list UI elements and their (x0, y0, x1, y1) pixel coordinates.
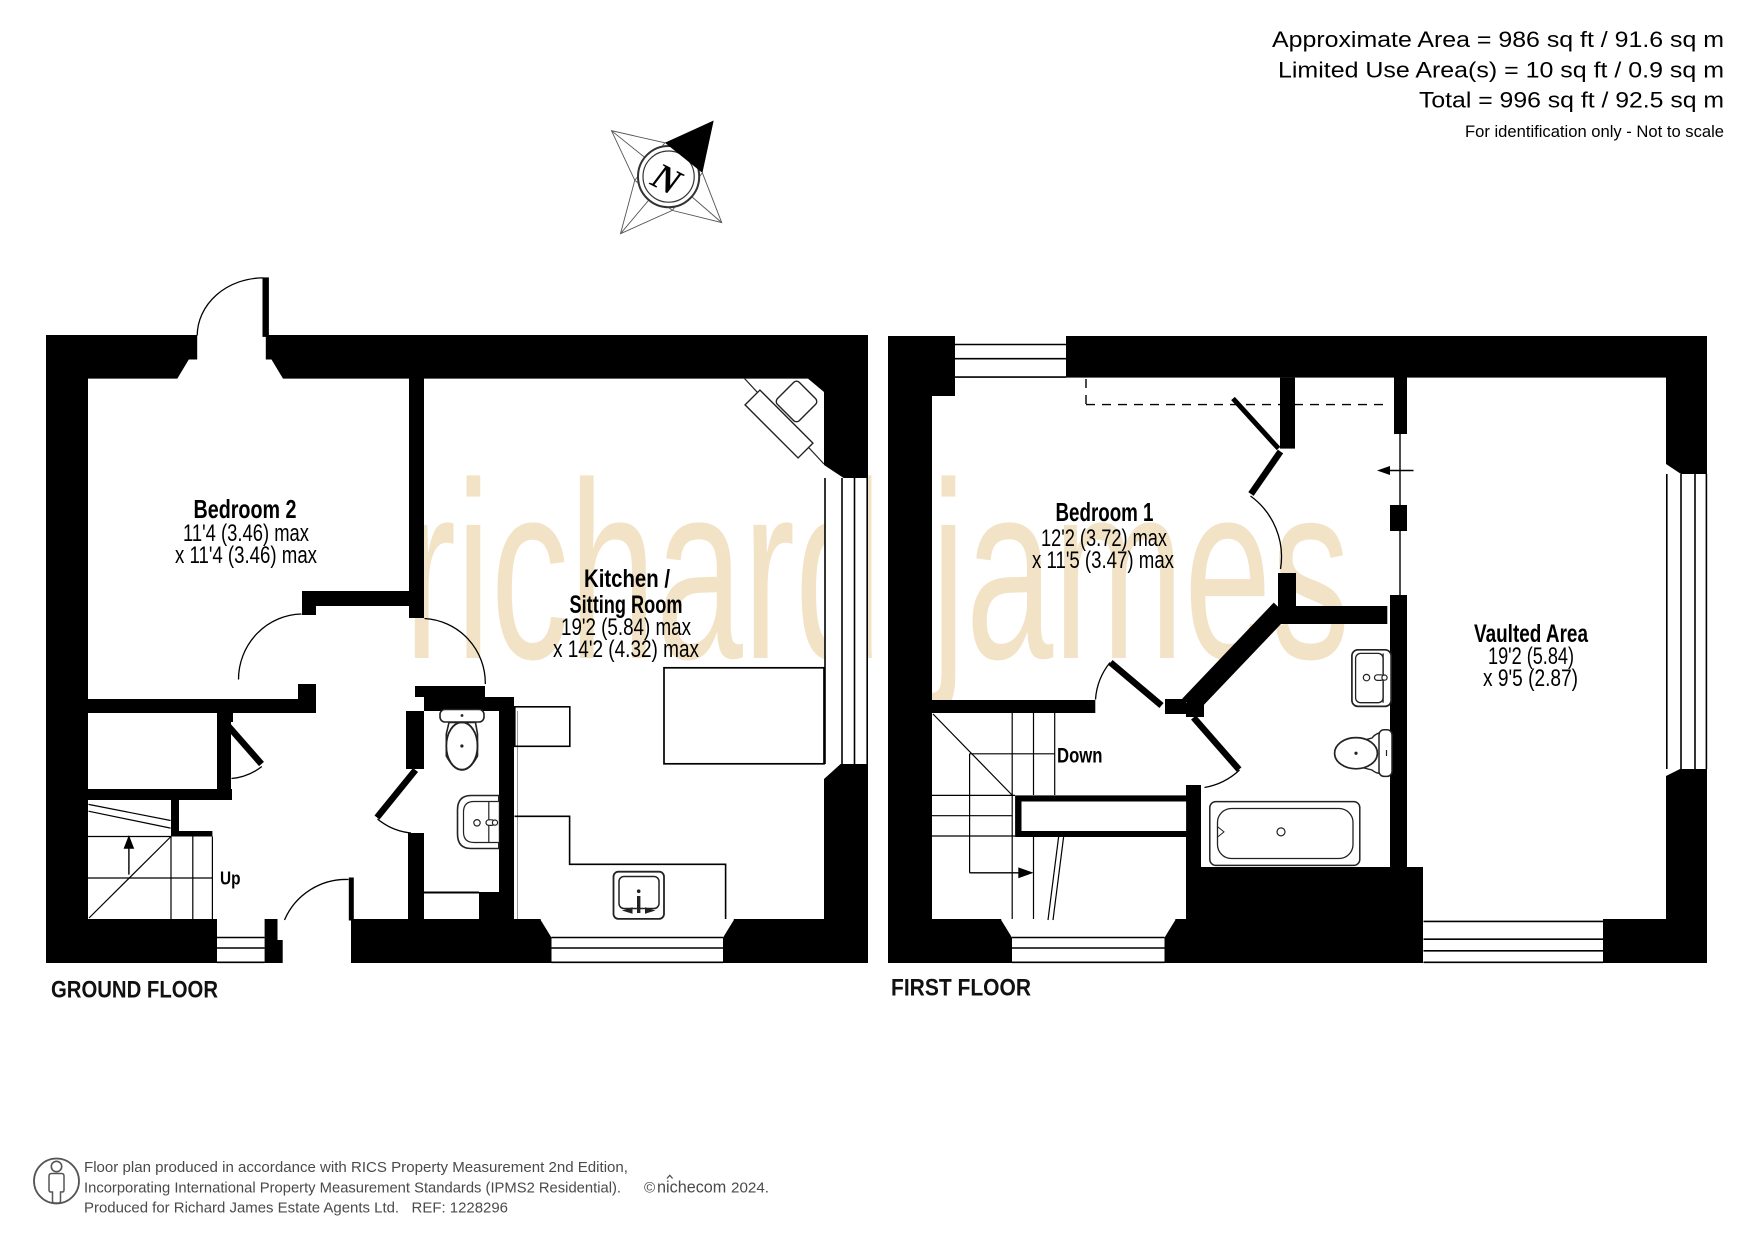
svg-text:x 11'5 (3.47) max: x 11'5 (3.47) max (1032, 547, 1174, 574)
svg-text:FIRST FLOOR: FIRST FLOOR (891, 975, 1031, 1002)
svg-text:2024.: 2024. (731, 1179, 769, 1196)
svg-text:Incorporating International Pr: Incorporating International Property Mea… (84, 1179, 621, 1196)
svg-text:x 11'4 (3.46) max: x 11'4 (3.46) max (175, 542, 317, 569)
svg-text:For identification only - Not: For identification only - Not to scale (1465, 123, 1724, 141)
svg-text:Kitchen /: Kitchen / (584, 565, 670, 593)
svg-text:x 14'2 (4.32) max: x 14'2 (4.32) max (553, 636, 699, 663)
svg-text:Bedroom 1: Bedroom 1 (1056, 497, 1154, 527)
svg-text:Produced for Richard James Est: Produced for Richard James Estate Agents… (84, 1200, 508, 1217)
svg-text:Approximate Area = 986 sq ft /: Approximate Area = 986 sq ft / 91.6 sq m (1272, 27, 1724, 52)
svg-text:Up: Up (220, 869, 241, 889)
svg-text:©: © (644, 1179, 655, 1196)
svg-text:GROUND FLOOR: GROUND FLOOR (51, 977, 218, 1004)
svg-text:Total = 996 sq ft / 92.5 sq m: Total = 996 sq ft / 92.5 sq m (1419, 88, 1724, 113)
svg-text:x 9'5 (2.87): x 9'5 (2.87) (1483, 665, 1578, 692)
svg-text:nichecom: nichecom (657, 1178, 726, 1196)
svg-text:Down: Down (1057, 745, 1103, 768)
svg-text:Limited Use Area(s) = 10 sq ft: Limited Use Area(s) = 10 sq ft / 0.9 sq … (1278, 58, 1724, 83)
svg-text:Floor plan produced in accorda: Floor plan produced in accordance with R… (84, 1159, 628, 1176)
